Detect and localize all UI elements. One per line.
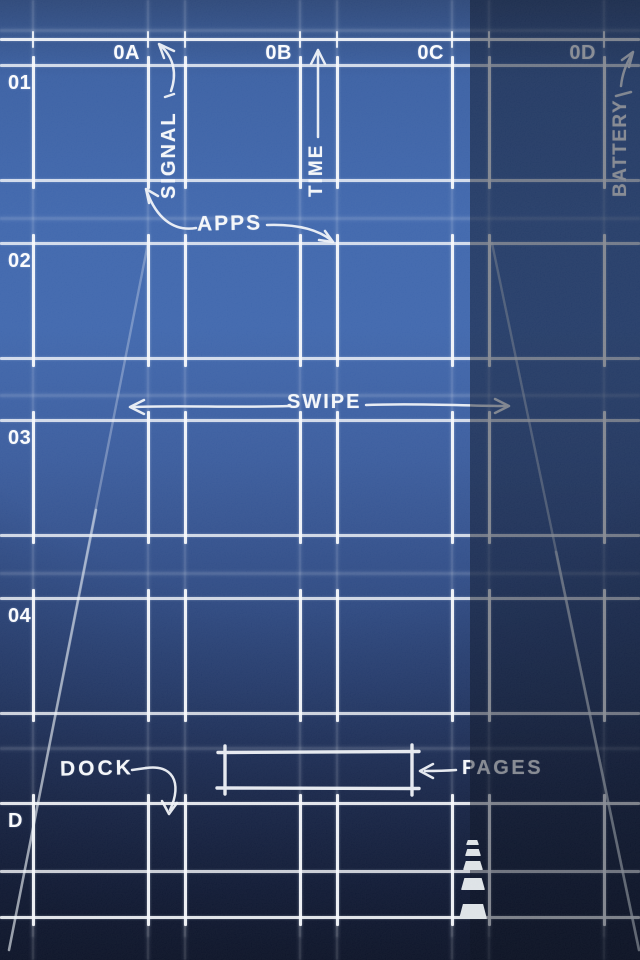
status-tick	[184, 31, 186, 48]
status-tick	[336, 31, 338, 48]
row-label-D: D	[8, 810, 23, 833]
app-slot-edge-0-0	[32, 56, 35, 189]
signal-label: SIGNAL	[158, 111, 181, 199]
app-slot-edge-4-1	[184, 794, 187, 926]
signal-arrow-icon	[159, 44, 174, 97]
app-slot-edge-0-1	[299, 56, 302, 189]
app-slot-edge-3-1	[299, 589, 302, 722]
app-slot-edge-3-0	[147, 589, 150, 722]
road-dash-1	[466, 840, 479, 845]
dock-reflection-stub	[488, 919, 490, 937]
row-line	[0, 242, 640, 245]
app-slot-edge-1-2	[336, 234, 339, 367]
column-label-0D: 0D	[569, 42, 596, 65]
app-slot-edge-1-0	[32, 234, 35, 367]
app-slot-edge-1-1	[184, 234, 187, 367]
app-slot-edge-4-3	[488, 794, 491, 926]
row-line	[0, 712, 640, 715]
time-label: TIME	[306, 144, 328, 197]
row-line	[0, 802, 640, 805]
app-slot-edge-3-3	[603, 589, 606, 722]
row-line	[0, 357, 640, 360]
column-label-0C: 0C	[417, 42, 444, 65]
dock-reflection-stub	[336, 919, 338, 937]
app-slot-edge-1-3	[488, 234, 491, 367]
dock-reflection-stub	[451, 919, 453, 937]
dock-reflection-stub	[603, 919, 605, 937]
status-tick	[147, 31, 149, 48]
status-tick	[451, 31, 453, 48]
row-line	[0, 916, 640, 919]
dock-label: DOCK	[60, 756, 134, 781]
app-slot-edge-1-2	[451, 234, 454, 367]
app-slot-edge-2-2	[336, 411, 339, 544]
row-label-03: 03	[8, 427, 31, 450]
swipe-label: SWIPE	[287, 391, 361, 414]
road-dash-5	[459, 904, 487, 919]
dock-reflection-stub	[184, 919, 186, 937]
battery-label: BATTERY	[610, 99, 632, 197]
pages-label: PAGES	[462, 757, 543, 780]
column-label-0B: 0B	[265, 42, 292, 65]
app-slot-edge-2-0	[147, 411, 150, 544]
app-slot-edge-3-0	[32, 589, 35, 722]
app-slot-edge-2-1	[299, 411, 302, 544]
dock-arrow-icon	[132, 767, 177, 814]
road-dash-2	[465, 849, 481, 856]
app-slot-edge-3-3	[488, 589, 491, 722]
row-line	[0, 419, 640, 422]
road-dash-3	[463, 861, 483, 870]
row-line	[0, 534, 640, 537]
apps-label: APPS	[197, 211, 263, 236]
app-slot-edge-4-3	[603, 794, 606, 926]
grid-ghost-horizontal	[0, 217, 640, 220]
pages-indicator-box	[217, 745, 419, 795]
app-slot-edge-0-3	[488, 56, 491, 189]
app-slot-edge-2-3	[488, 411, 491, 544]
app-slot-edge-4-0	[32, 794, 35, 926]
row-line	[0, 64, 640, 67]
app-slot-edge-3-1	[184, 589, 187, 722]
road-dash-4	[461, 878, 485, 890]
app-slot-edge-4-2	[451, 794, 454, 926]
status-tick	[32, 31, 34, 48]
perspective-line-right-lower	[556, 552, 639, 950]
status-tick	[488, 31, 490, 48]
app-slot-edge-0-2	[451, 56, 454, 189]
app-slot-edge-4-2	[336, 794, 339, 926]
grid-ghost-horizontal	[0, 572, 640, 575]
dock-reflection-stub	[299, 919, 301, 937]
app-slot-edge-3-2	[451, 589, 454, 722]
app-slot-edge-0-3	[603, 56, 606, 189]
grid-ghost-horizontal	[0, 29, 640, 32]
phone-screen-blueprint-wallpaper: 0A0B0C0D01020304D SIGNAL TIME BATTERY AP…	[0, 0, 640, 960]
status-divider-line	[0, 38, 640, 41]
app-slot-edge-2-3	[603, 411, 606, 544]
app-slot-edge-2-1	[184, 411, 187, 544]
row-label-02: 02	[8, 250, 31, 273]
app-slot-edge-4-1	[299, 794, 302, 926]
row-label-01: 01	[8, 72, 31, 95]
battery-arrow-icon	[616, 52, 633, 96]
dock-reflection-stub	[147, 919, 149, 937]
status-tick	[299, 31, 301, 48]
grid-ghost-horizontal	[0, 747, 640, 750]
app-slot-edge-3-2	[336, 589, 339, 722]
row-label-04: 04	[8, 605, 31, 628]
dock-reflection-stub	[32, 919, 34, 937]
app-slot-edge-1-1	[299, 234, 302, 367]
app-slot-edge-2-0	[32, 411, 35, 544]
swipe-arrow-left-icon	[130, 400, 290, 414]
app-slot-edge-1-3	[603, 234, 606, 367]
app-slot-edge-0-0	[147, 56, 150, 189]
status-tick	[603, 31, 605, 48]
app-slot-edge-2-2	[451, 411, 454, 544]
column-label-0A: 0A	[113, 42, 140, 65]
app-slot-edge-0-1	[184, 56, 187, 189]
app-slot-edge-0-2	[336, 56, 339, 189]
app-slot-edge-1-0	[147, 234, 150, 367]
row-line	[0, 597, 640, 600]
dock-shelf-line	[0, 870, 640, 873]
app-slot-edge-4-0	[147, 794, 150, 926]
perspective-line-left-lower	[9, 510, 96, 950]
